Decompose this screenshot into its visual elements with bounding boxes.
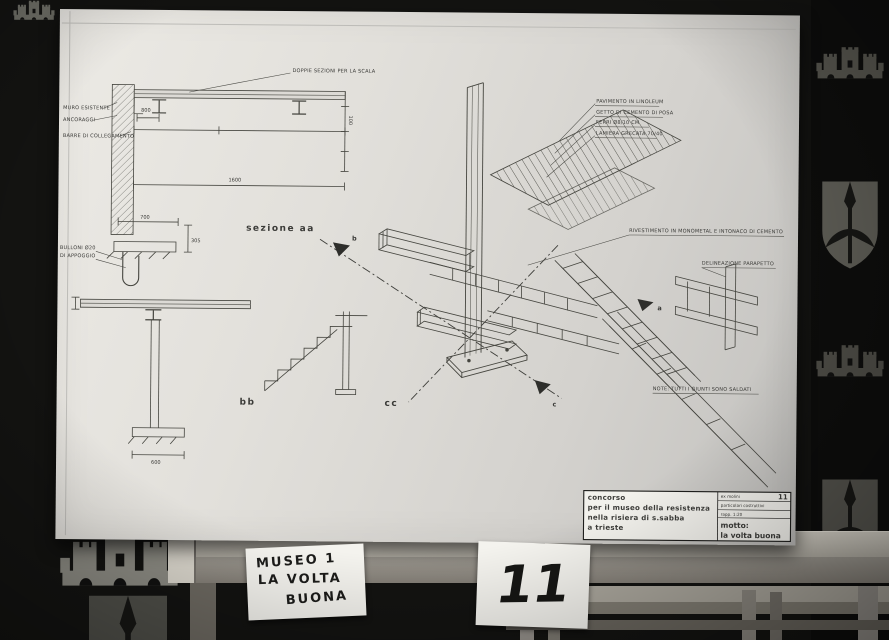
mural-crown-icon — [814, 44, 886, 84]
bench-leg — [742, 590, 756, 640]
note-welds: NOTE: TUTTI I GIUNTI SONO SALDATI — [653, 386, 752, 393]
cut-letter-c: c — [553, 400, 557, 408]
dim-305: 305 — [191, 238, 201, 244]
dimension-texts: 800 1600 100 700 305 600 — [138, 108, 353, 468]
note-ties: BARRE DI COLLEGAMENTO — [63, 133, 134, 140]
section-cut-lines — [319, 239, 563, 403]
section-cut-arrows — [332, 242, 654, 395]
card-number-value: 11 — [492, 555, 575, 616]
cut-letter-b: b — [352, 235, 357, 243]
annotation-texts: MURO ESISTENTE ANCORAGGI BARRE DI COLLEG… — [59, 66, 785, 393]
bench-leg — [770, 592, 782, 640]
note-deck-4: LAMIERA GRECATA 70/40 — [596, 131, 663, 138]
sheet-scale: rapp. 1:20 — [721, 512, 743, 517]
bench-leg — [190, 583, 216, 640]
motto-value: la volta buona — [720, 531, 780, 541]
section-bb-drawing — [70, 297, 250, 460]
axon-landing-frame — [429, 262, 620, 354]
note-top: DOPPIE SEZIONI PER LA SCALA — [292, 68, 375, 75]
section-aa-drawing — [107, 84, 350, 287]
dim-100: 100 — [347, 116, 353, 126]
note-anchors: ANCORAGGI — [63, 117, 95, 123]
trieste-halberd-shield-icon — [80, 592, 176, 640]
title-line-4: a trieste — [587, 524, 623, 532]
photo-scene: MURO ESISTENTE ANCORAGGI BARRE DI COLLEG… — [0, 0, 889, 640]
note-deck-2: GETTO DI CEMENTO DI POSA — [596, 110, 674, 117]
dim-600: 600 — [151, 460, 161, 466]
drawing-board: MURO ESISTENTE ANCORAGGI BARRE DI COLLEG… — [55, 9, 800, 545]
axon-stairs — [553, 253, 778, 487]
axon-beams — [378, 229, 517, 349]
sheet-number: 11 — [778, 493, 788, 501]
trieste-halberd-shield-icon — [817, 120, 883, 330]
dim-800: 800 — [141, 108, 151, 114]
bench-leg — [858, 586, 878, 640]
note-bolts-2: DI APPOGGIO — [60, 253, 96, 259]
label-bb: bb — [240, 398, 256, 408]
note-deck-1: PAVIMENTO IN LINOLEUM — [596, 99, 663, 106]
sheet-content: particolari costruttivi — [721, 503, 765, 508]
mural-crown-icon — [814, 342, 886, 382]
sheet-ref: ex molini — [721, 494, 740, 499]
note-deck-3: FERRI Ø8/10 CM — [596, 119, 639, 126]
motto-label: motto: — [720, 521, 748, 530]
dim-1600: 1600 — [228, 177, 241, 183]
note-cladding: RIVESTIMENTO IN MONOMETAL E INTONACO DI … — [629, 228, 783, 235]
label-card-museo: MUSEO 1 LA VOLTA BUONA — [245, 543, 366, 620]
title-line-1: concorso — [588, 494, 626, 502]
note-bolts-1: BULLONI Ø20 — [60, 244, 96, 251]
note-wall: MURO ESISTENTE — [63, 105, 110, 111]
section-cc-drawing — [265, 311, 368, 395]
dim-700: 700 — [140, 215, 150, 221]
axon-column — [447, 82, 530, 378]
mural-crown-icon — [12, 0, 56, 22]
title-line-3: nella risiera di s.sabba — [588, 514, 685, 523]
note-parapet: DELINEAZIONE PARAPETTO — [702, 261, 774, 268]
axon-deck — [490, 109, 681, 231]
label-cc: cc — [385, 399, 399, 409]
title-block: concorso per il museo della resistenza n… — [583, 491, 790, 542]
number-card: 11 — [476, 541, 591, 629]
title-line-2: per il museo della resistenza — [588, 504, 711, 513]
cut-letter-a: a — [657, 304, 661, 312]
axon-parapet — [675, 263, 758, 350]
label-sezione-aa: sezione aa — [246, 224, 315, 235]
